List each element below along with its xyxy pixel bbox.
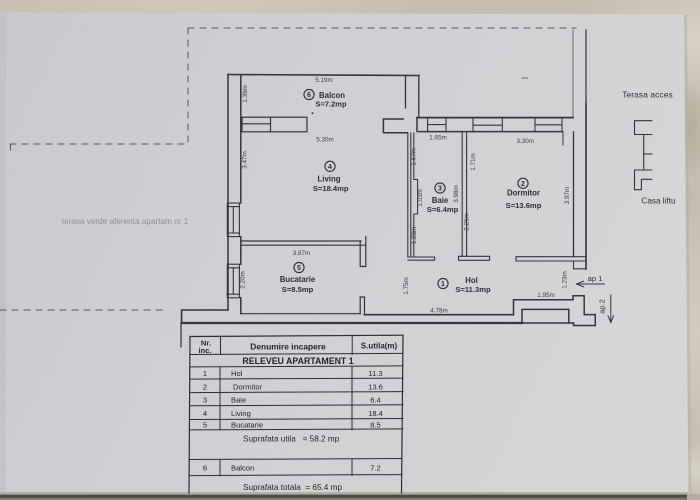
svg-text:8.5: 8.5: [370, 421, 381, 430]
svg-text:Casa liftu: Casa liftu: [641, 197, 676, 206]
svg-text:1.75m: 1.75m: [403, 277, 410, 295]
svg-text:2: 2: [203, 382, 207, 391]
svg-text:5: 5: [297, 265, 301, 272]
svg-text:5: 5: [203, 421, 207, 430]
svg-text:inc.: inc.: [198, 346, 211, 355]
svg-text:Suprafata utila = 58.2 mp: Suprafata utila = 58.2 mp: [243, 435, 340, 444]
svg-text:13.6: 13.6: [368, 382, 383, 391]
svg-text:18.4: 18.4: [368, 409, 383, 418]
svg-text:S=13.6mp: S=13.6mp: [506, 201, 542, 210]
svg-text:7.2: 7.2: [370, 464, 381, 473]
svg-text:2.20m: 2.20m: [240, 271, 247, 289]
svg-text:S=6.4mp: S=6.4mp: [427, 205, 459, 214]
svg-text:3.98m: 3.98m: [453, 185, 460, 203]
svg-text:Hol: Hol: [465, 276, 478, 285]
svg-text:3.30m: 3.30m: [517, 138, 535, 145]
svg-text:ap 1: ap 1: [588, 274, 603, 283]
svg-text:1: 1: [203, 369, 207, 378]
svg-text:1.71m: 1.71m: [470, 153, 477, 171]
svg-text:S=7.2mp: S=7.2mp: [315, 100, 346, 109]
svg-text:Balcon: Balcon: [231, 464, 254, 473]
svg-text:1.67m: 1.67m: [411, 148, 418, 166]
svg-text:1.23m: 1.23m: [562, 271, 569, 289]
svg-text:S=18.4mp: S=18.4mp: [313, 184, 349, 193]
svg-text:3.97m: 3.97m: [564, 187, 571, 205]
svg-text:ap 2: ap 2: [598, 299, 607, 314]
svg-text:Suprafata totala = 65.4 mp: Suprafata totala = 65.4 mp: [243, 483, 342, 492]
svg-text:4.78m: 4.78m: [430, 308, 448, 315]
svg-text:1.95m: 1.95m: [537, 292, 555, 299]
svg-text:6: 6: [307, 92, 311, 99]
svg-text:Terasa acces: Terasa acces: [622, 90, 673, 100]
svg-text:Bucatarie: Bucatarie: [231, 421, 263, 430]
svg-text:Bucatarie: Bucatarie: [280, 275, 316, 284]
svg-text:6: 6: [203, 464, 207, 473]
svg-text:S=8.5mp: S=8.5mp: [282, 285, 314, 294]
svg-text:Hol: Hol: [231, 369, 243, 378]
svg-text:Denumire incapere: Denumire incapere: [250, 342, 326, 352]
svg-text:terasa verde aferenta apartam: terasa verde aferenta apartam nr 1: [62, 217, 189, 226]
svg-text:3.47m: 3.47m: [242, 151, 249, 169]
svg-text:4: 4: [328, 164, 332, 171]
svg-text:S=11.3mp: S=11.3mp: [455, 285, 491, 294]
svg-text:Living: Living: [318, 175, 341, 184]
svg-text:11.3: 11.3: [368, 369, 382, 378]
svg-text:1.39m: 1.39m: [242, 85, 249, 103]
svg-text:2: 2: [521, 181, 525, 188]
svg-text:1: 1: [441, 281, 445, 288]
svg-text:6.4: 6.4: [370, 396, 381, 405]
svg-text:Baie: Baie: [231, 396, 246, 405]
svg-text:5.19m: 5.19m: [315, 77, 333, 84]
svg-text:Living: Living: [231, 409, 251, 418]
svg-text:3: 3: [203, 396, 207, 405]
svg-text:RELEVEU APARTAMENT 1: RELEVEU APARTAMENT 1: [242, 356, 353, 366]
svg-text:1.03m: 1.03m: [417, 189, 424, 207]
svg-text:3: 3: [438, 186, 442, 193]
svg-text:1.65m: 1.65m: [429, 135, 447, 142]
svg-text:2.26m: 2.26m: [464, 213, 471, 231]
svg-text:5.30m: 5.30m: [316, 137, 334, 144]
svg-text:3.87m: 3.87m: [293, 250, 311, 257]
svg-text:1.28m: 1.28m: [411, 227, 418, 245]
svg-text:S.utila(m): S.utila(m): [361, 342, 398, 351]
svg-text:Dormitor: Dormitor: [507, 189, 540, 198]
svg-text:4: 4: [203, 409, 207, 418]
svg-text:Dormitor: Dormitor: [233, 382, 263, 391]
